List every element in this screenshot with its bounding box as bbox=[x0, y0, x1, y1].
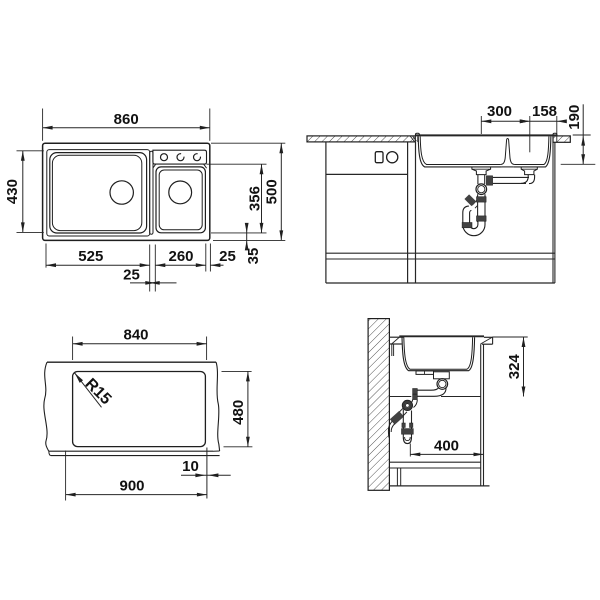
svg-text:840: 840 bbox=[123, 326, 148, 343]
svg-text:158: 158 bbox=[532, 103, 557, 120]
svg-text:480: 480 bbox=[230, 400, 247, 425]
svg-text:190: 190 bbox=[566, 105, 583, 130]
svg-text:400: 400 bbox=[434, 438, 459, 455]
svg-text:860: 860 bbox=[114, 111, 139, 128]
svg-text:25: 25 bbox=[219, 248, 236, 265]
svg-text:35: 35 bbox=[245, 248, 262, 265]
svg-text:10: 10 bbox=[182, 458, 199, 475]
svg-text:25: 25 bbox=[123, 267, 140, 284]
svg-text:324: 324 bbox=[506, 354, 523, 380]
svg-text:356: 356 bbox=[247, 186, 264, 211]
svg-text:260: 260 bbox=[168, 248, 193, 265]
svg-text:900: 900 bbox=[119, 478, 144, 495]
svg-text:300: 300 bbox=[487, 103, 512, 120]
svg-text:500: 500 bbox=[263, 179, 280, 204]
svg-text:525: 525 bbox=[78, 248, 103, 265]
svg-text:430: 430 bbox=[4, 179, 21, 204]
